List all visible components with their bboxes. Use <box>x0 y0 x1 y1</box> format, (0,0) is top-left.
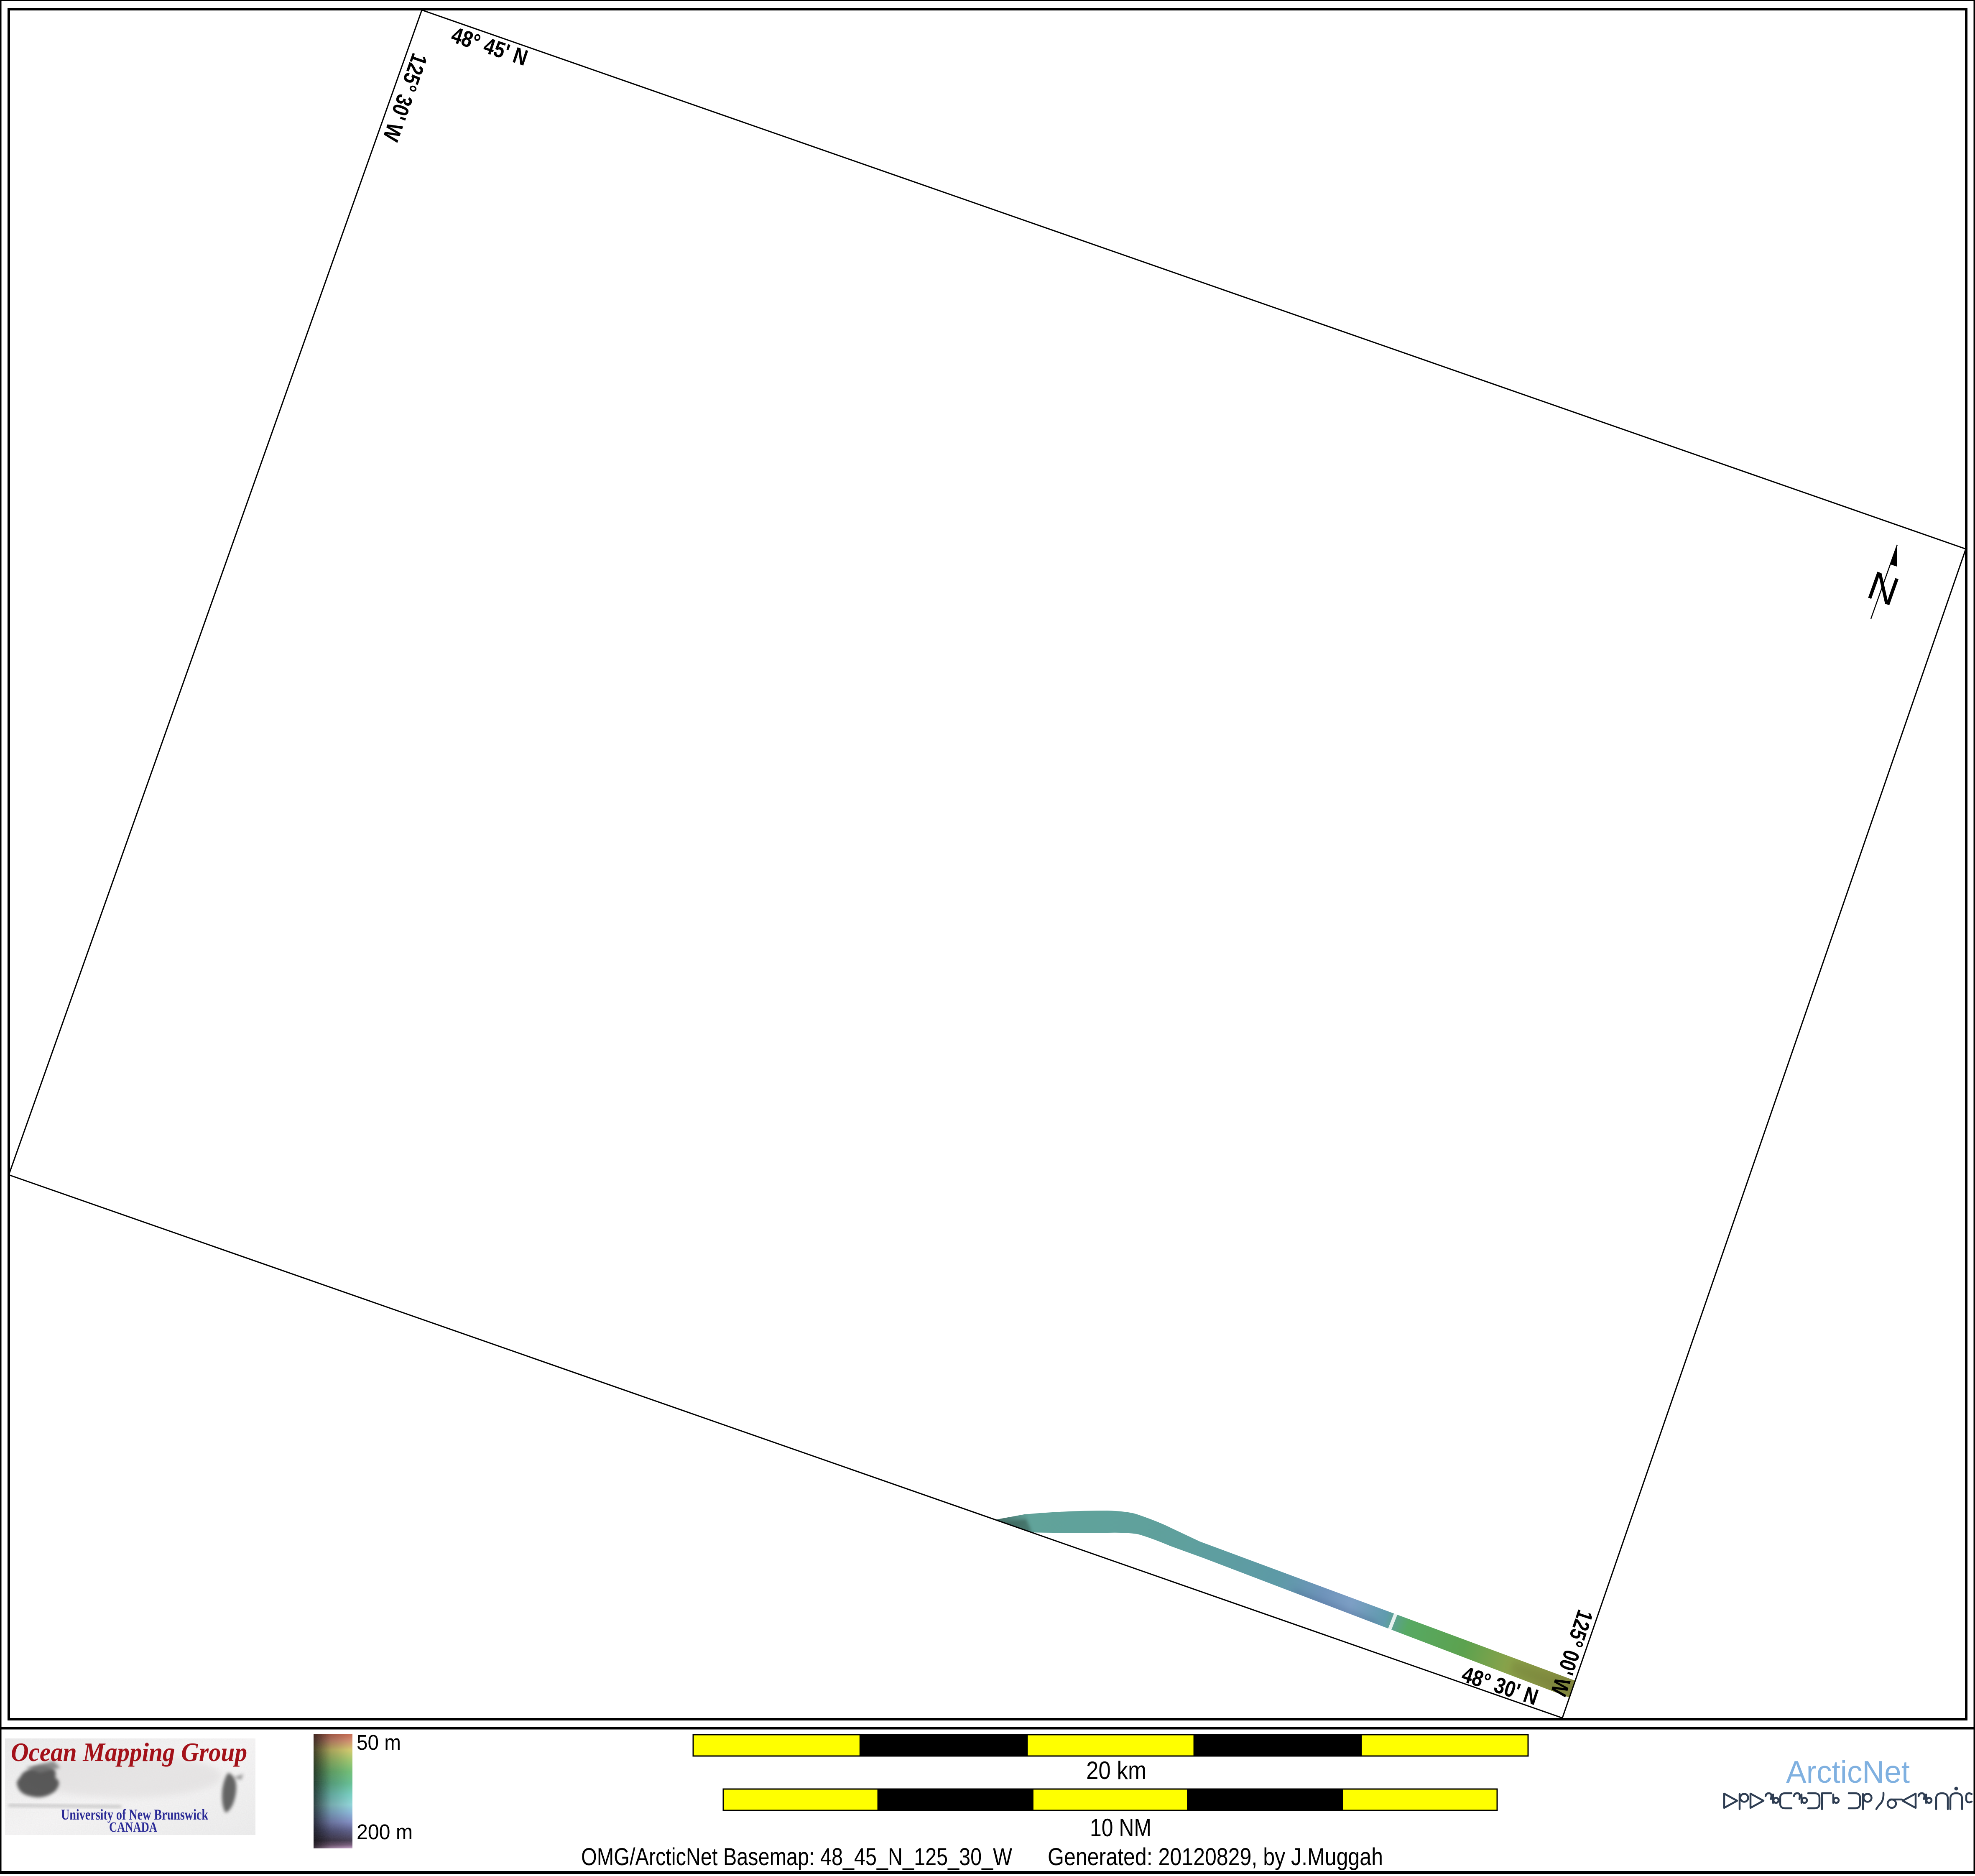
svg-text:Generated: 20120829, by J.Mugg: Generated: 20120829, by J.Muggah <box>1048 1843 1383 1871</box>
svg-text:ArcticNet: ArcticNet <box>1786 1754 1910 1789</box>
svg-text:10 NM: 10 NM <box>1090 1814 1151 1842</box>
svg-text:OMG/ArcticNet Basemap: 48_45_N: OMG/ArcticNet Basemap: 48_45_N_125_30_W <box>581 1843 1012 1871</box>
svg-text:20 km: 20 km <box>1086 1756 1146 1784</box>
svg-text:50 m: 50 m <box>357 1731 401 1754</box>
svg-text:200 m: 200 m <box>357 1820 413 1844</box>
svg-text:CANADA: CANADA <box>109 1820 157 1835</box>
svg-text:Ocean Mapping Group: Ocean Mapping Group <box>11 1737 247 1767</box>
